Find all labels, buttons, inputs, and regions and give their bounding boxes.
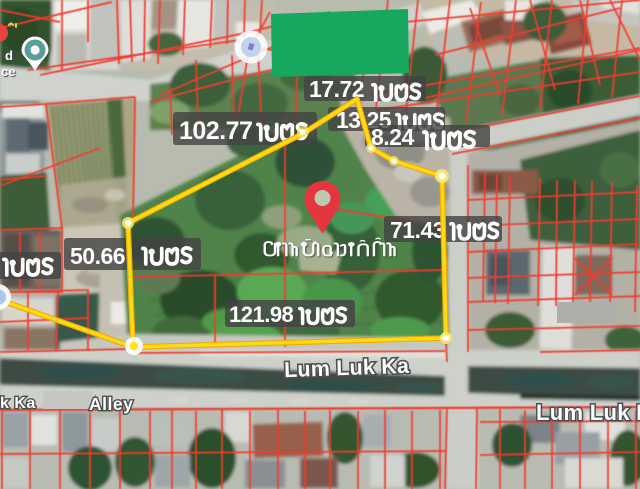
svg-text:d: d	[5, 48, 13, 63]
svg-text:ce: ce	[1, 64, 15, 79]
svg-text:102.77: 102.77	[179, 117, 252, 145]
svg-text:8.24: 8.24	[371, 124, 414, 150]
svg-text:71.43: 71.43	[390, 217, 445, 243]
svg-text:Lum Luk Ka: Lum Luk Ka	[536, 400, 640, 425]
svg-text:121.98: 121.98	[229, 302, 294, 327]
svg-text:k Ka: k Ka	[0, 395, 36, 412]
svg-text:Alley: Alley	[89, 394, 133, 414]
svg-text:50.66: 50.66	[70, 243, 125, 269]
svg-text:Lum Luk Ka: Lum Luk Ka	[284, 354, 411, 382]
